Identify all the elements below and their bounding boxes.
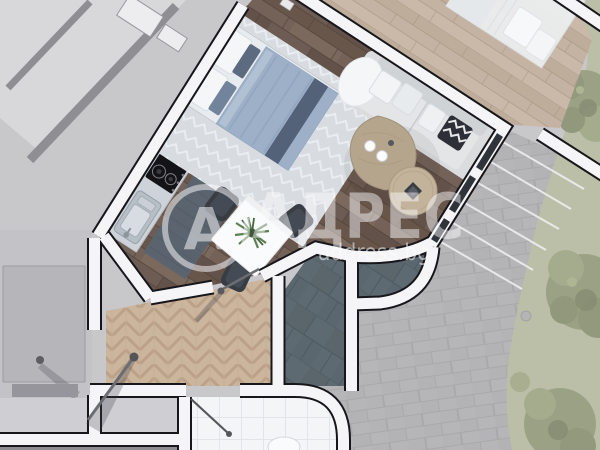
garden-stone [521, 311, 531, 321]
watermark-domain-text: address.bg [318, 240, 430, 266]
door-handle-icon [36, 356, 44, 364]
floor-plan-image: А АДРЕС address.bg [0, 0, 600, 450]
bush [510, 372, 530, 392]
bathroom [191, 397, 337, 450]
cup [377, 151, 388, 162]
floor-plan: А АДРЕС address.bg [0, 0, 600, 450]
watermark-logo-letter: А [184, 195, 229, 263]
cup [365, 141, 376, 152]
